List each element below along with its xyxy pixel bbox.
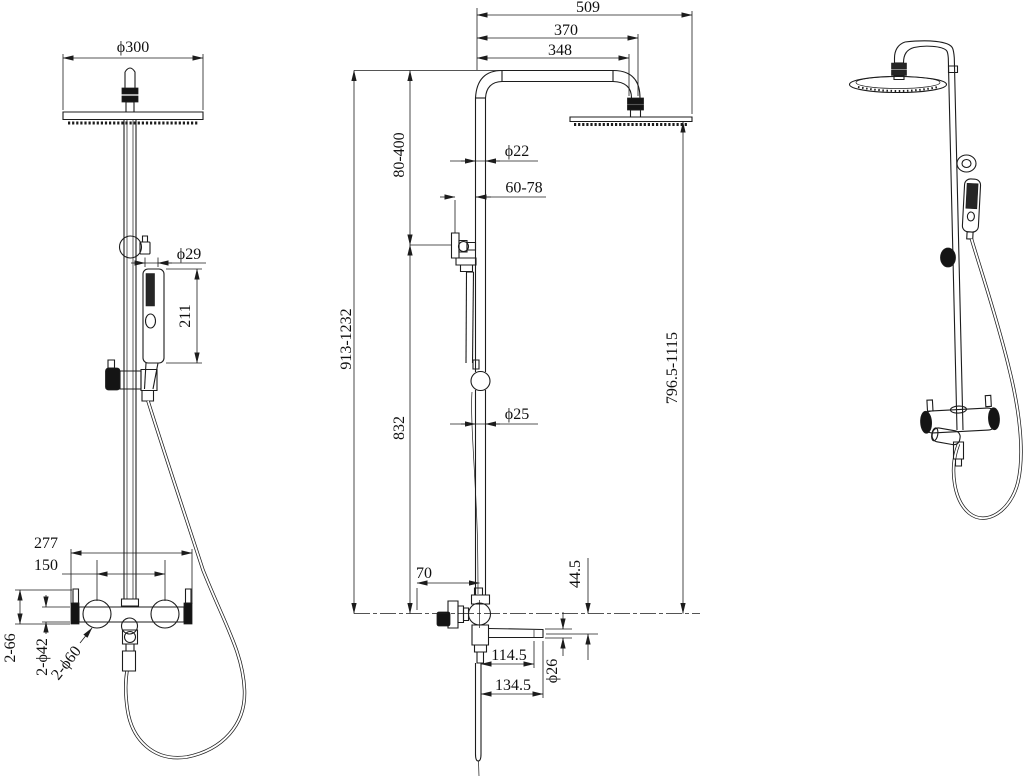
front-overhead-shower: [63, 68, 203, 123]
dim-arm-length: 348: [548, 42, 572, 59]
front-slider-bracket: [106, 360, 158, 401]
front-dimensions: ϕ300 ϕ29 211 277 150: [2, 39, 206, 683]
dim-escutcheon-diameter: 2-ϕ60: [48, 643, 85, 683]
dim-wall-bracket-depth: 60-78: [505, 180, 542, 197]
drawing-page: ϕ300 ϕ29 211 277 150: [0, 0, 1032, 776]
front-view: ϕ300 ϕ29 211 277 150: [2, 39, 245, 758]
side-wall-bracket: [452, 233, 476, 258]
persp-hose: [954, 239, 1021, 518]
dim-overall-height: 913-1232: [338, 308, 355, 369]
side-view: 509 370 348 913-1232 80-400 832 796.5-11…: [338, 0, 700, 776]
dim-lower-column-height: 832: [391, 416, 408, 440]
dim-head-center-reach: 370: [554, 22, 578, 39]
technical-drawing-canvas: ϕ300 ϕ29 211 277 150: [0, 0, 1032, 776]
dim-handle-depth: 2-66: [2, 633, 19, 662]
dim-spout-reach-inner: 114.5: [491, 647, 526, 664]
side-hand-shower: [456, 258, 490, 391]
dim-spout-diameter: ϕ26: [544, 659, 561, 683]
dim-handle-center-distance: 150: [34, 557, 58, 574]
dim-lower-pipe-diameter: ϕ25: [505, 406, 529, 423]
dim-hand-shower-diameter: ϕ29: [177, 246, 201, 263]
dim-handle-diameter: 2-ϕ42: [34, 638, 51, 676]
side-shower-arm: [475, 71, 692, 125]
front-riser-pipe: [122, 120, 139, 606]
side-dimensions: 509 370 348 913-1232 80-400 832 796.5-11…: [338, 0, 700, 698]
dim-head-above-valve: 796.5-1115: [664, 332, 681, 404]
dim-spout-drop: 44.5: [567, 560, 584, 588]
dim-spout-reach-outer: 134.5: [495, 677, 531, 694]
front-valve-body: [71, 589, 192, 671]
persp-overhead-shower: [850, 63, 947, 93]
dim-valve-depth: 70: [416, 565, 432, 582]
dim-head-height-adjustment: 80-400: [391, 132, 408, 177]
dim-head-diameter: ϕ300: [117, 39, 149, 56]
dim-hand-shower-length: 211: [177, 304, 194, 327]
dim-overall-reach: 509: [576, 0, 600, 16]
front-shower-hose: [126, 401, 245, 758]
side-riser-pipe: [472, 98, 486, 595]
dim-upper-pipe-diameter: ϕ22: [505, 143, 529, 160]
persp-arm-and-riser: [895, 41, 964, 430]
perspective-view: [850, 41, 1022, 518]
front-hand-shower: [143, 269, 164, 389]
dim-valve-body-width: 277: [34, 535, 58, 552]
persp-valve-body: [919, 395, 1000, 466]
